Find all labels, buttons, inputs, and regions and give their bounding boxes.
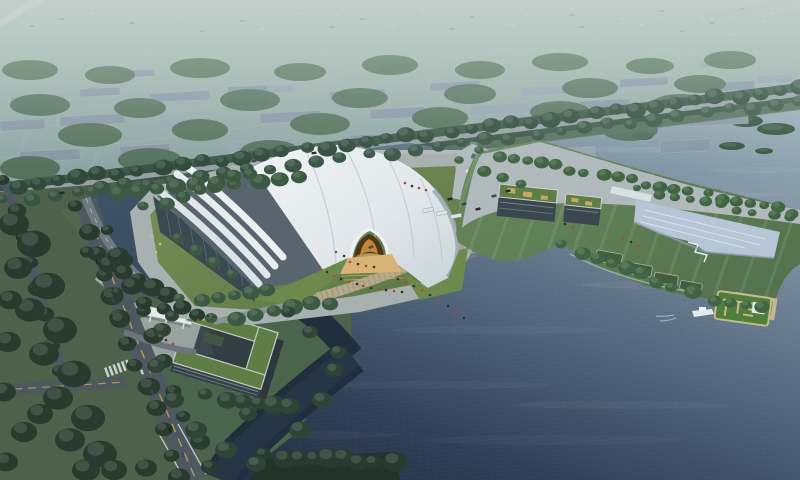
rendering-stage [0, 0, 800, 480]
color-cast-overlay [0, 0, 800, 480]
aerial-rendering [0, 0, 800, 480]
